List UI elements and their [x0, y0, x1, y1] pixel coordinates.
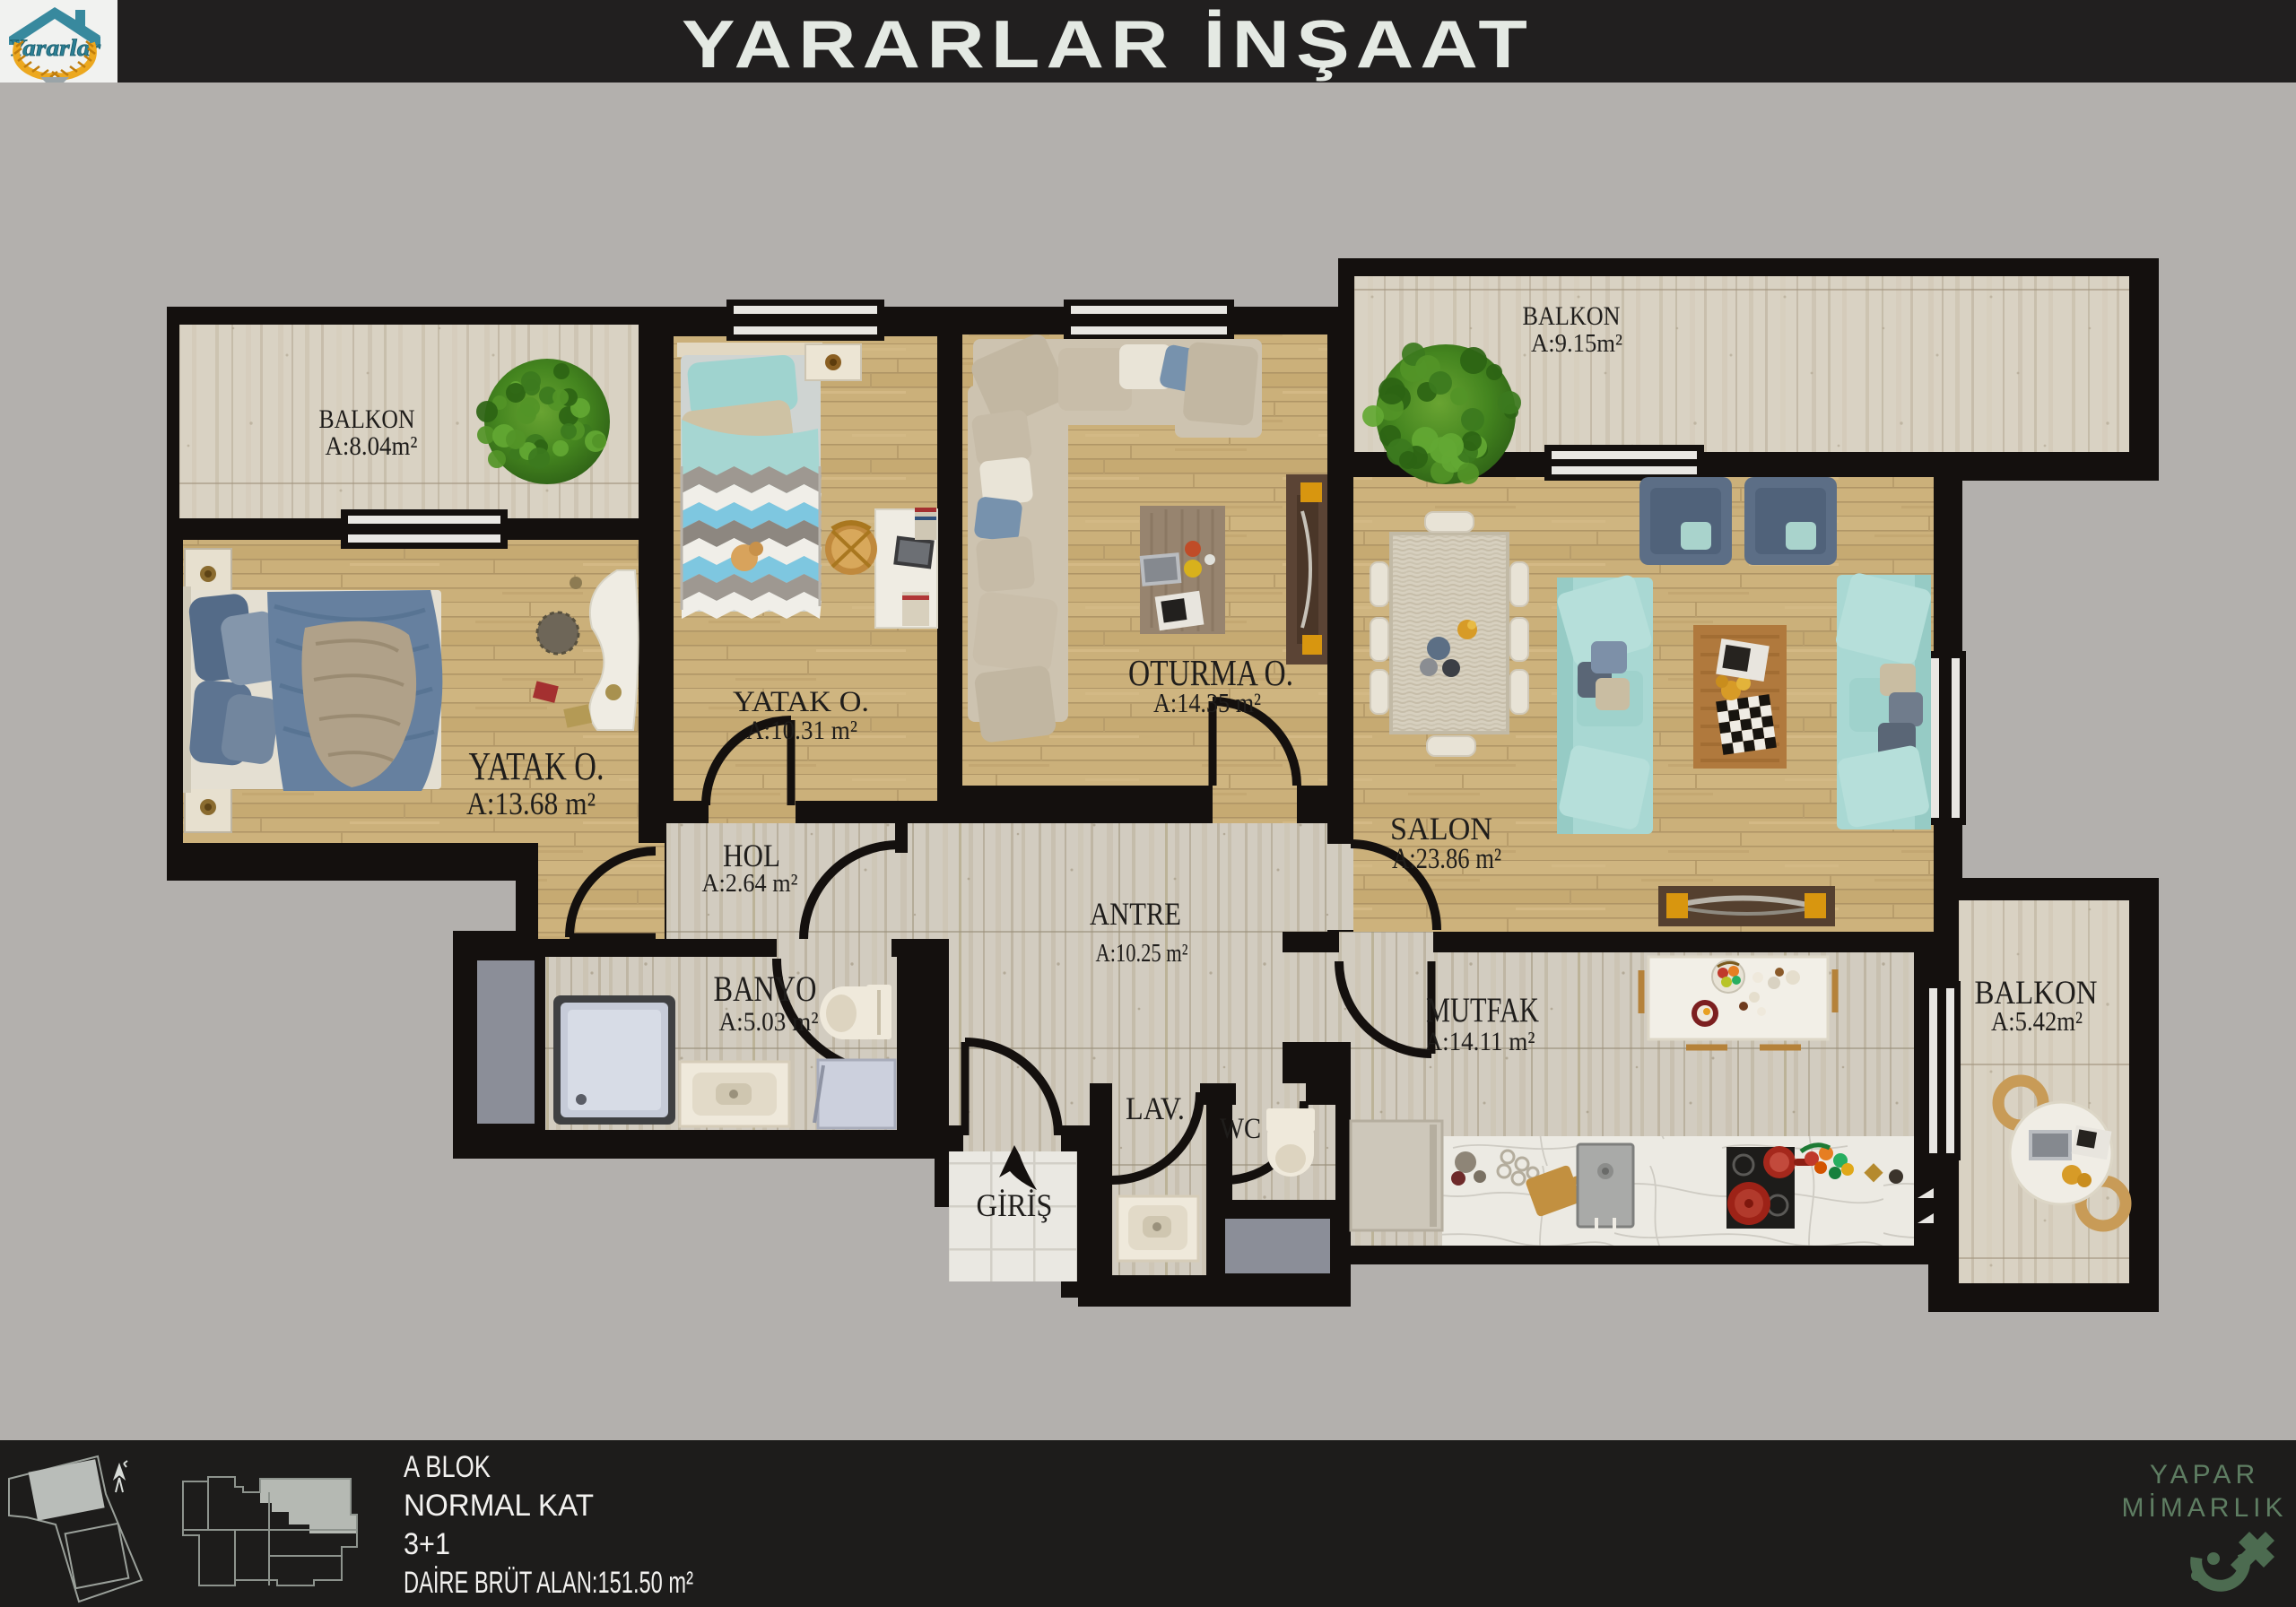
svg-text:A:8.04m²: A:8.04m²	[326, 431, 418, 461]
svg-text:A:23.86 m²: A:23.86 m²	[1392, 843, 1501, 875]
svg-text:3+1: 3+1	[404, 1527, 450, 1561]
svg-text:BALKON: BALKON	[319, 404, 415, 434]
svg-text:A:9.15m²: A:9.15m²	[1531, 329, 1622, 358]
svg-text:DAİRE BRÜT ALAN:151.50 m²: DAİRE BRÜT ALAN:151.50 m²	[404, 1566, 693, 1600]
svg-text:LAV.: LAV.	[1126, 1090, 1185, 1126]
svg-text:A:10.31 m²: A:10.31 m²	[746, 716, 857, 745]
svg-text:YATAK O.: YATAK O.	[733, 686, 869, 718]
svg-text:BALKON: BALKON	[1523, 301, 1621, 331]
svg-text:NORMAL KAT: NORMAL KAT	[404, 1489, 594, 1523]
svg-text:A:10.25 m²: A:10.25 m²	[1096, 939, 1188, 968]
svg-text:A BLOK: A BLOK	[404, 1450, 491, 1484]
svg-text:A:5.42m²: A:5.42m²	[1991, 1005, 2083, 1037]
svg-text:GİRİŞ: GİRİŞ	[977, 1187, 1053, 1223]
svg-text:MİMARLIK: MİMARLIK	[2121, 1493, 2287, 1523]
svg-text:ANTRE: ANTRE	[1090, 896, 1181, 932]
svg-text:HOL: HOL	[723, 838, 780, 873]
svg-text:YARARLAR İNŞAAT: YARARLAR İNŞAAT	[682, 6, 1534, 82]
svg-text:WC: WC	[1220, 1113, 1261, 1145]
svg-text:A:2.64 m²: A:2.64 m²	[702, 869, 798, 898]
svg-text:A:14.11 m²: A:14.11 m²	[1425, 1027, 1535, 1056]
svg-text:MUTFAK: MUTFAK	[1426, 991, 1539, 1029]
svg-text:YATAK O.: YATAK O.	[469, 744, 604, 788]
svg-text:SALON: SALON	[1390, 811, 1492, 847]
svg-text:YAPAR: YAPAR	[2150, 1460, 2259, 1490]
svg-text:A:14.35 m²: A:14.35 m²	[1153, 687, 1261, 718]
svg-text:A:5.03 m²: A:5.03 m²	[719, 1007, 819, 1037]
svg-text:BANYO: BANYO	[714, 969, 817, 1009]
svg-text:A:13.68 m²: A:13.68 m²	[466, 786, 596, 821]
